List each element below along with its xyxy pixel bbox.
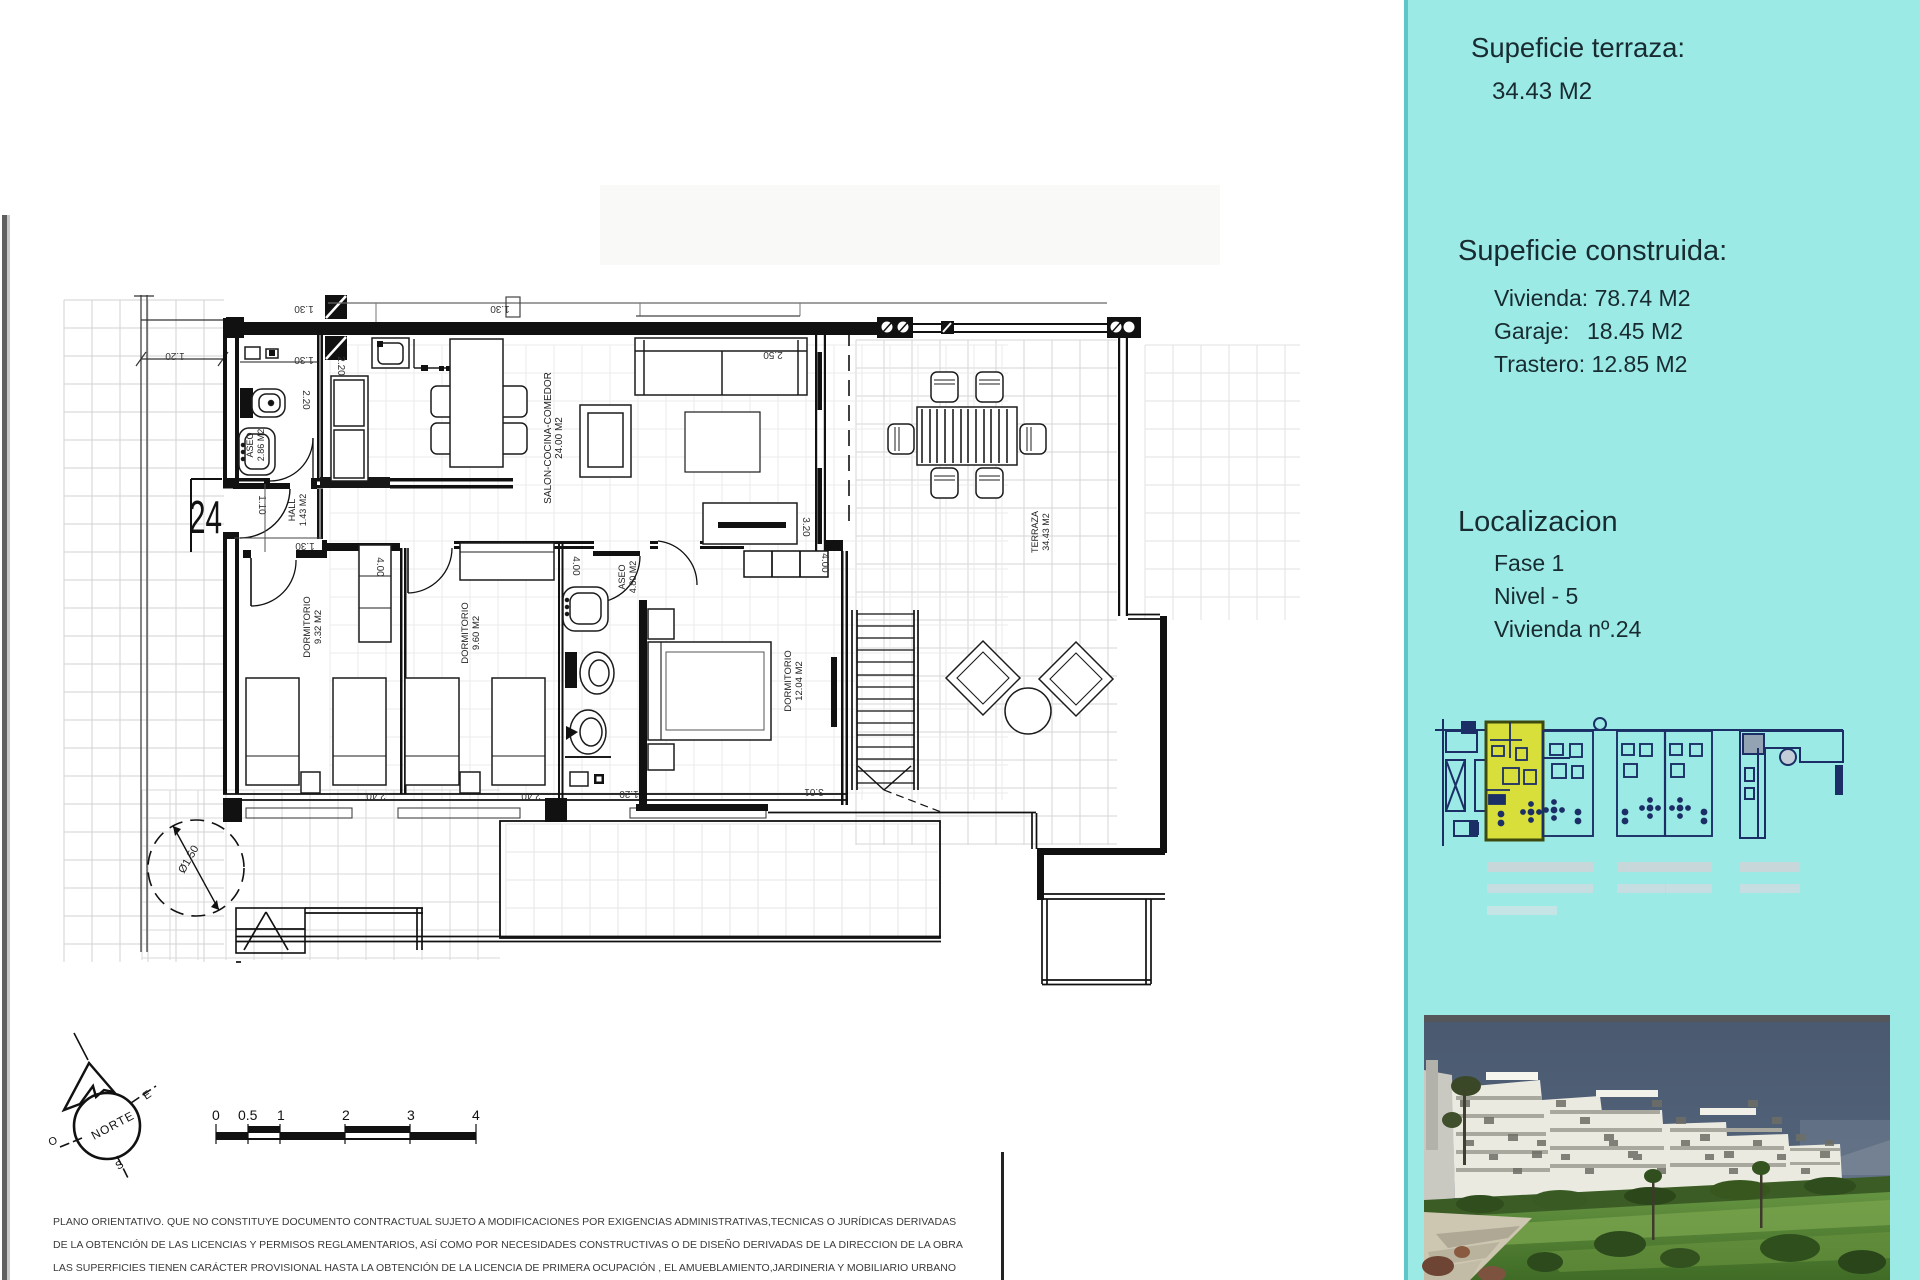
svg-text:1.30: 1.30 xyxy=(490,303,510,314)
svg-text:1.30: 1.30 xyxy=(294,303,314,314)
svg-text:2.86 M2: 2.86 M2 xyxy=(256,429,266,462)
svg-text:0.5: 0.5 xyxy=(238,1107,258,1123)
svg-text:SALON-COCINA-COMEDOR: SALON-COCINA-COMEDOR xyxy=(543,372,554,504)
svg-text:LAS SUPERFICIES TIENEN CARÁCTE: LAS SUPERFICIES TIENEN CARÁCTER PROVISIO… xyxy=(53,1261,956,1274)
svg-text:PLANO ORIENTATIVO. QUE NO CONS: PLANO ORIENTATIVO. QUE NO CONSTITUYE DOC… xyxy=(53,1215,956,1228)
svg-text:2.40: 2.40 xyxy=(366,790,386,801)
svg-text:1.20: 1.20 xyxy=(619,788,639,799)
svg-text:2.20: 2.20 xyxy=(335,356,346,376)
svg-text:2.50: 2.50 xyxy=(763,349,783,360)
svg-text:2.40: 2.40 xyxy=(521,790,541,801)
svg-text:HALL: HALL xyxy=(287,499,297,522)
svg-text:O: O xyxy=(47,1134,60,1148)
svg-text:3.20: 3.20 xyxy=(800,517,811,537)
svg-text:4.00: 4.00 xyxy=(819,553,830,573)
svg-text:ASEO: ASEO xyxy=(245,432,255,457)
svg-text:ASEO: ASEO xyxy=(617,564,627,589)
svg-text:DE LA OBTENCIÓN DE LAS LICENCI: DE LA OBTENCIÓN DE LAS LICENCIAS Y PERMI… xyxy=(53,1238,963,1251)
svg-text:24.00 M2: 24.00 M2 xyxy=(554,417,565,459)
svg-text:DORMITORIO: DORMITORIO xyxy=(783,650,794,712)
svg-text:1.30: 1.30 xyxy=(295,540,315,551)
svg-text:DORMITORIO: DORMITORIO xyxy=(302,596,313,658)
svg-text:4.80 M2: 4.80 M2 xyxy=(628,561,638,594)
svg-text:0: 0 xyxy=(212,1107,220,1123)
svg-text:3.01: 3.01 xyxy=(804,786,824,797)
svg-text:4.00: 4.00 xyxy=(570,556,581,576)
svg-text:1.30: 1.30 xyxy=(294,354,314,365)
svg-text:NORTE: NORTE xyxy=(89,1108,137,1142)
svg-text:E: E xyxy=(141,1088,154,1102)
svg-text:3: 3 xyxy=(407,1107,415,1123)
svg-text:34.43 M2: 34.43 M2 xyxy=(1041,513,1051,551)
svg-text:DORMITORIO: DORMITORIO xyxy=(460,602,471,664)
svg-text:4: 4 xyxy=(472,1107,480,1123)
svg-text:1.20: 1.20 xyxy=(165,350,185,361)
svg-text:1: 1 xyxy=(277,1107,285,1123)
svg-text:24: 24 xyxy=(189,491,222,543)
svg-text:9.60 M2: 9.60 M2 xyxy=(471,616,482,650)
svg-text:2: 2 xyxy=(342,1107,350,1123)
svg-text:12.04 M2: 12.04 M2 xyxy=(794,661,805,701)
svg-text:1.43 M2: 1.43 M2 xyxy=(298,494,308,527)
svg-text:2.20: 2.20 xyxy=(300,390,311,410)
svg-text:TERRAZA: TERRAZA xyxy=(1030,511,1040,553)
svg-text:9.32 M2: 9.32 M2 xyxy=(313,610,324,644)
svg-text:4.00: 4.00 xyxy=(374,557,385,577)
